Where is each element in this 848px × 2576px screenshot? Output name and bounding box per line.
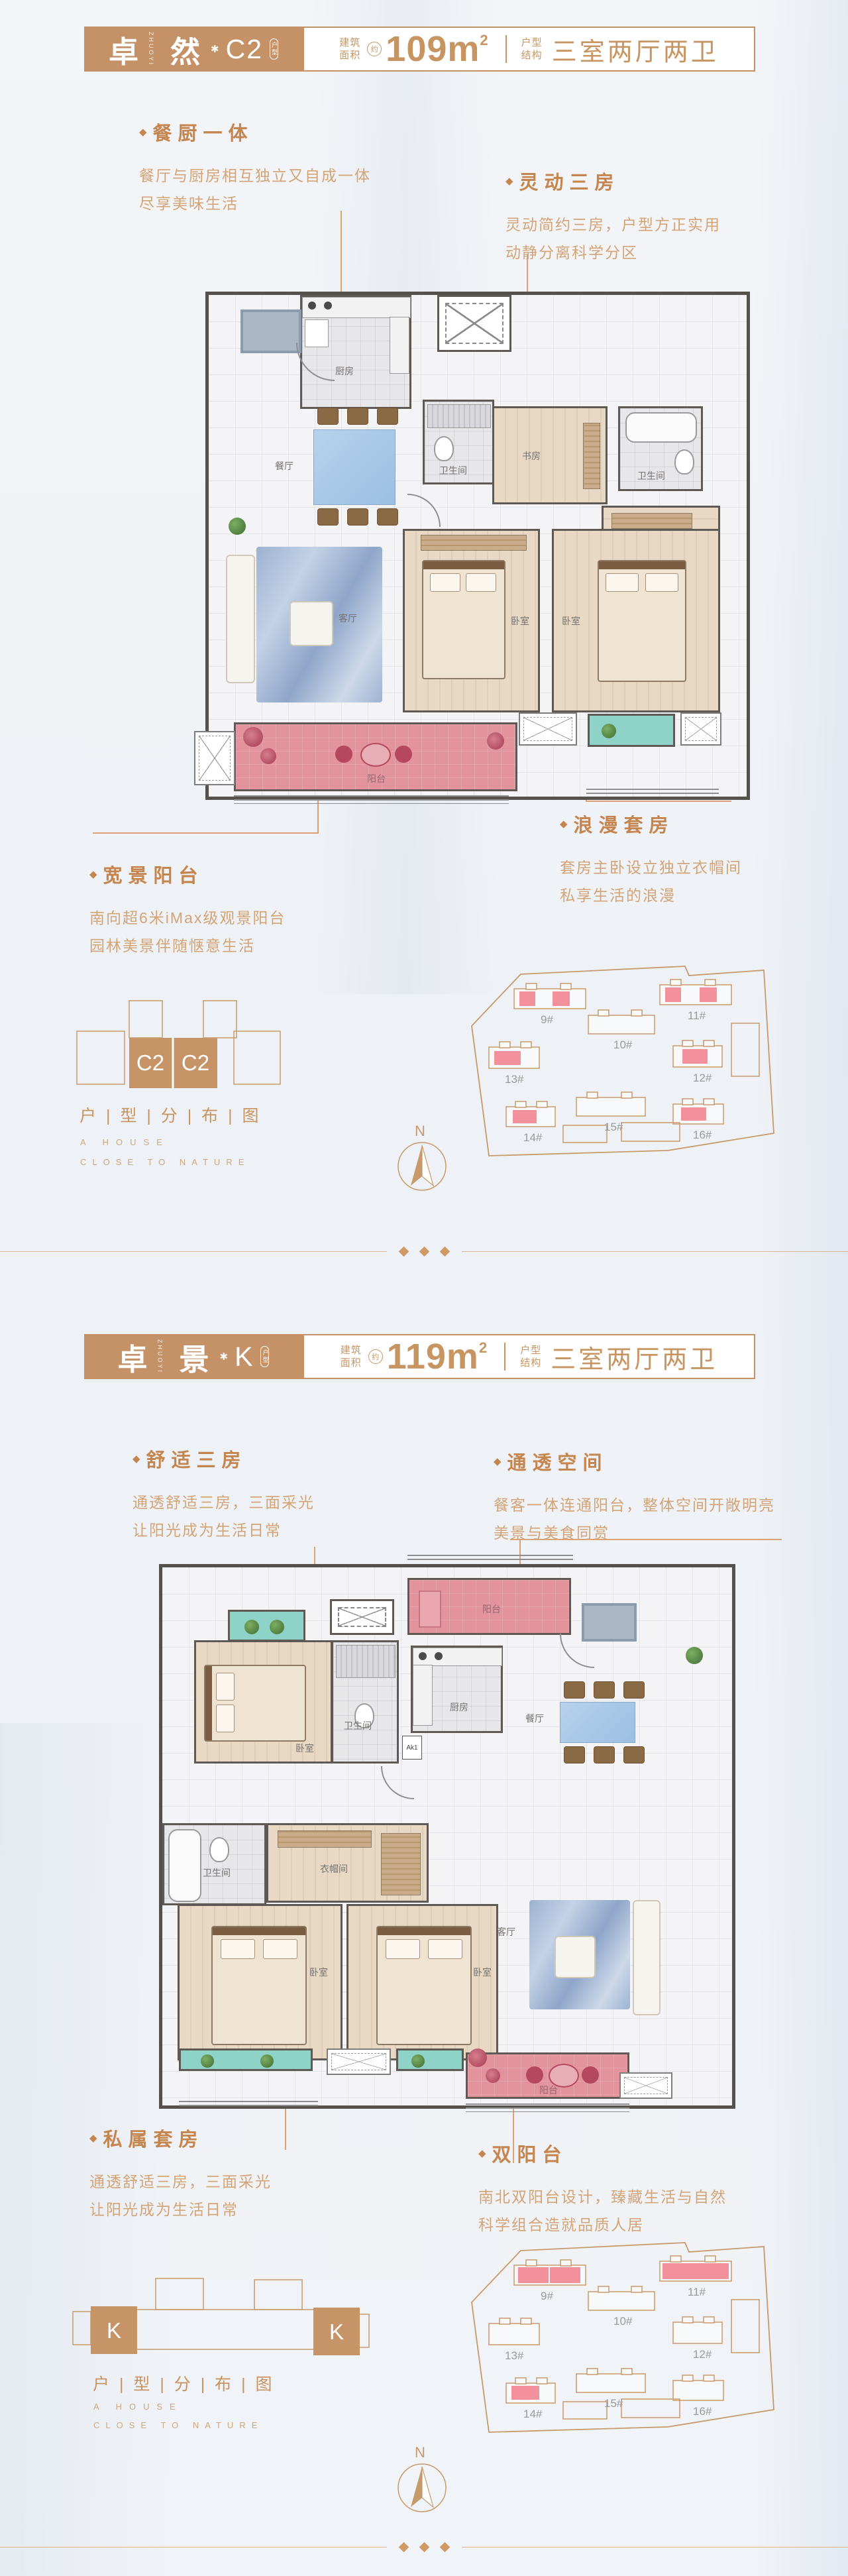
chair-graphic [564,1681,585,1699]
room-label: 厨房 [450,1701,468,1714]
layout-label-line1: 户型 [521,36,543,49]
sofa-graphic [226,555,255,683]
ac-x-icon [523,717,572,741]
coffee-table [290,601,333,646]
feature-title-row: ◆ 灵动三房 [505,167,721,195]
divider-line [462,2547,848,2548]
tower-top [203,1001,237,1038]
brochure-page: 卓 ZHUOYI 然 ✱ C2 户型 建筑 面积 约 109m 2 户型 结构 … [0,0,848,2576]
desk-graphic [583,423,600,489]
pillow [221,1939,255,1959]
pillow [428,1939,462,1959]
room-label: 厨房 [335,364,354,378]
balcony-railing [179,2101,318,2108]
area-value: 119m [387,1336,479,1377]
feature-kitchen-dining: ◆ 餐厨一体 餐厅与厨房相互独立又自成一体 尽享美味生活 [139,118,371,217]
diamond-icon: ◆ [494,1455,502,1467]
compass-needle-light [422,1145,433,1186]
spec-divider [505,35,507,63]
pillow [263,1939,297,1959]
amenity-outline [621,2399,680,2418]
feature-line: 南向超6米iMax级观景阳台 [89,904,286,932]
feature-line: 动静分离科学分区 [505,239,721,266]
balcony-chair [335,746,352,763]
feature-line: 通透舒适三房，三面采光 [89,2168,272,2196]
area-label-line2: 面积 [341,1357,362,1369]
layout-label: 户型 结构 [520,1344,541,1369]
plant-icon [229,518,246,535]
feature-comfort-rooms: ◆ 舒适三房 通透舒适三房，三面采光 让阳光成为生活日常 [132,1445,315,1544]
unit-specs-box: 建筑 面积 约 119m 2 户型 结构 三室两厅两卫 [303,1334,755,1379]
room-bedroom-2: 卧室 [552,529,720,712]
diamond-icon [419,1247,429,1257]
diamond-icon: ◆ [560,818,568,830]
ac-platform [194,731,235,785]
area-value: 109m [386,28,480,70]
balcony-railing [234,795,509,804]
distribution-caption-en1: A HOUSE [93,2402,183,2412]
unit-block-label: K [107,2318,121,2343]
feature-line: 南北双阳台设计，臻藏生活与自然 [478,2183,727,2211]
unit-distribution-c2: C2 C2 [74,981,299,1103]
feature-open-space: ◆ 通透空间 餐客一体连通阳台，整体空间开敞明亮 美景与美食同赏 [494,1447,775,1547]
building-12 [673,2317,722,2343]
building-label: 14# [523,2408,543,2420]
building-label: 13# [505,2349,524,2362]
bed-graphic [204,1665,306,1742]
feature-private-suite: ◆ 私属套房 通透舒适三房，三面采光 让阳光成为生活日常 [89,2124,272,2223]
coffee-table [555,1936,596,1978]
building-label: 11# [688,1009,706,1022]
shower-mat [427,404,491,428]
diamond-icon [439,2542,450,2553]
chair-graphic [347,508,368,526]
pillow [386,1939,420,1959]
wardrobe-shelf [278,1830,372,1848]
diamond-icon: ◆ [89,868,97,880]
unit-name-char2: 然 [170,28,200,71]
area-label-line1: 建筑 [341,1344,362,1357]
wardrobe-shelf [381,1833,421,1895]
flower-icon [243,727,263,747]
layout-label-line2: 结构 [521,49,543,62]
compass: N [391,1121,454,1196]
diamond-icon [398,2542,409,2553]
unit-distribution-k: K K [61,2272,372,2378]
feature-title-row: ◆ 餐厨一体 [139,118,371,146]
room-bedroom-1: 卧室 [403,529,540,712]
feature-line: 餐厅与厨房相互独立又自成一体 [139,162,371,190]
balcony-chair [395,746,412,763]
unit-type-badge: 户型 [270,38,278,60]
feature-double-balcony: ◆ 双阳台 南北双阳台设计，臻藏生活与自然 科学组合造就品质人居 [478,2139,727,2239]
room-label: 卫生间 [637,469,665,482]
feature-title-row: ◆ 双阳台 [478,2139,727,2167]
section-divider [0,2544,848,2551]
feature-balcony: ◆ 宽景阳台 南向超6米iMax级观景阳台 园林美景伴随惬意生活 [89,860,286,960]
compass: N [391,2443,454,2517]
layout-value: 三室两厅两卫 [552,31,719,68]
area-label-line1: 建筑 [339,36,360,49]
dining-table [313,429,396,505]
toilet-graphic [674,449,694,475]
siteplan-k: 9# 10# 11# 12# 13# 14# 15# 16# [462,2239,784,2437]
room-label: 卫生间 [203,1866,231,1879]
building-wing [73,2312,91,2345]
door-tag: Ak1 [402,1736,422,1760]
callout-line [93,832,319,834]
sofa-graphic [633,1900,661,2015]
toilet-graphic [209,1837,229,1862]
flower-icon [487,732,504,750]
floorplan-c2: 厨房 卫生间 书房 卫生间 衣帽间 [205,292,750,800]
dining-chairs [564,1681,645,1699]
plant-icon [201,2054,214,2068]
ac-platform [519,712,577,746]
elevator-shaft [330,1599,394,1635]
building-13 [489,2318,539,2345]
balcony-green [228,1610,305,1642]
layout-label-line1: 户型 [520,1344,541,1357]
room-cloak: 衣帽间 [266,1823,429,1903]
room-label: 餐厅 [525,1712,544,1725]
building-label: 12# [693,1072,712,1084]
star-icon: ✱ [211,43,219,55]
building-label: 12# [693,2348,712,2361]
ac-x-icon [685,717,717,741]
wardrobe-shelf [421,535,527,551]
chair-graphic [377,408,398,425]
feature-line: 让阳光成为生活日常 [132,1516,315,1544]
ac-x-icon [199,736,231,781]
area-sup: 2 [479,1339,487,1357]
dining-chairs [317,508,398,526]
headboard [378,1927,470,1935]
kitchen-counter [413,1648,502,1666]
stove-burner-icon [308,302,316,309]
kitchen-counter [390,317,409,374]
shaft-x-icon [445,303,503,344]
feature-title-row: ◆ 宽景阳台 [89,860,286,888]
wardrobe-shelf [611,513,692,529]
headboard [205,1666,212,1740]
unit-name-box: 卓 ZHUOYI 然 ✱ C2 户型 [84,27,303,72]
unit-code: K [235,1341,254,1372]
distribution-caption: 户 | 型 | 分 | 布 | 图 [93,2371,275,2395]
star-icon: ✱ [220,1351,229,1363]
unit-name-char2: 景 [180,1335,209,1378]
chair-graphic [594,1746,615,1764]
room-label: 书房 [522,449,541,463]
room-label: 卧室 [295,1742,314,1755]
tower-top [156,2278,203,2310]
diamond-icon [439,1247,450,1257]
plant-icon [270,1620,284,1634]
door-arc [560,1634,594,1668]
balcony-green [179,2048,313,2071]
room-label: 客厅 [497,1925,515,1938]
compass-needle-light [422,2467,433,2507]
headboard [599,561,685,569]
building-15 [576,1092,645,1116]
chair-graphic [623,1746,645,1764]
unit-block-label: C2 [136,1050,164,1075]
unit-name-pinyin: ZHUOYI [148,32,154,66]
building-wing [77,1031,125,1084]
headboard [423,561,504,569]
chair-graphic [564,1746,585,1764]
balcony-railing [407,1555,573,1563]
callout-line [586,801,731,802]
bed-graphic [211,1926,307,2045]
area-label: 建筑 面积 [341,1344,362,1369]
building-middle [136,2310,315,2349]
bed-graphic [376,1926,472,2045]
room-label: 阳台 [367,772,386,785]
tower-top [254,2280,302,2310]
unit-specs-box: 建筑 面积 约 109m 2 户型 结构 三室两厅两卫 [303,27,755,72]
building-wing [234,1031,280,1084]
feature-title: 舒适三房 [146,1445,247,1473]
headboard [213,1927,305,1935]
plant-icon [260,2054,274,2068]
amenity-outline [563,2402,607,2419]
balcony-chair [526,2066,543,2084]
flower-icon [468,2048,487,2067]
feature-suite: ◆ 浪漫套房 套房主卧设立独立衣帽间 私享生活的浪漫 [560,810,742,909]
pillow [466,573,496,592]
compass-n-label: N [415,1123,425,1139]
tower-outline [731,2300,759,2353]
bathtub-graphic [168,1829,201,1902]
chair-graphic [347,408,368,425]
distribution-caption-en2: CLOSE TO NATURE [80,1157,250,1167]
diamond-icon [419,2542,429,2553]
feature-line: 美景与美食同赏 [494,1519,775,1547]
tower-top [129,1001,162,1038]
feature-line: 灵动简约三房，户型方正实用 [505,211,721,239]
amenity-outline [563,1125,607,1143]
section-divider [0,1248,848,1255]
feature-title-row: ◆ 浪漫套房 [560,810,742,838]
unit-name-char1: 卓 [109,28,138,71]
chair-graphic [377,508,398,526]
feature-title: 私属套房 [103,2124,204,2152]
building-label: 15# [604,1121,623,1133]
building-label: 13# [505,1073,524,1086]
divider-line [0,2547,387,2548]
balcony-green [396,2048,464,2071]
layout-label-line2: 结构 [520,1357,541,1369]
unit-header-c2: 卓 ZHUOYI 然 ✱ C2 户型 建筑 面积 约 109m 2 户型 结构 … [84,27,755,72]
room-bedroom-2: 卧室 [178,1904,343,2060]
ac-platform [680,712,721,746]
dining-chairs [564,1746,645,1764]
elevator-shaft [437,295,511,352]
plant-icon [244,1620,259,1634]
diamond-icon: ◆ [132,1453,140,1465]
kitchen-counter [413,1665,433,1726]
balcony-railing [586,789,719,796]
area-label-line2: 面积 [339,49,360,62]
area-sup: 2 [480,32,488,49]
pillow [606,573,639,592]
building-label: 16# [693,1129,712,1141]
plant-icon [686,1647,703,1664]
room-label: 阳台 [482,1602,501,1616]
balcony-table [360,743,391,767]
chair-graphic [317,508,339,526]
balcony-north: 阳台 [407,1578,571,1635]
feature-line: 私享生活的浪漫 [560,881,742,909]
flower-icon [260,748,276,764]
building-label: 9# [541,1013,553,1026]
feature-title-row: ◆ 私属套房 [89,2124,272,2152]
building-label: 14# [523,1131,543,1144]
unit-name-char1: 卓 [118,1335,148,1378]
approx-badge: 约 [367,42,382,56]
unit-name-pinyin: ZHUOYI [157,1339,164,1374]
building-label: 11# [688,2286,706,2298]
stove-burner-icon [324,302,332,309]
distribution-caption-en2: CLOSE TO NATURE [93,2420,263,2430]
distribution-caption: 户 | 型 | 分 | 布 | 图 [79,1103,262,1127]
room-bedroom-1: 卧室 [194,1640,333,1764]
chair-graphic [317,408,339,425]
pillow [645,573,678,592]
area-label: 建筑 面积 [339,36,360,62]
compass-needle-dark [411,2467,422,2507]
shaft-x-icon [338,1607,386,1627]
feature-line: 让阳光成为生活日常 [89,2196,272,2223]
unit-code: C2 [226,34,263,65]
room-bath-1: 卫生间 [331,1640,399,1764]
layout-label: 户型 结构 [521,36,543,62]
pillow [216,1673,235,1701]
room-bath-2: 卫生间 [162,1823,266,1905]
chair-graphic [623,1681,645,1699]
ac-x-icon [624,2077,668,2094]
feature-line: 尽享美味生活 [139,190,371,217]
feature-line: 科学组合造就品质人居 [478,2211,727,2239]
feature-three-rooms: ◆ 灵动三房 灵动简约三房，户型方正实用 动静分离科学分区 [505,167,721,266]
stove-burner-icon [435,1652,443,1660]
diamond-icon: ◆ [89,2132,97,2144]
room-bedroom-3: 卧室 [346,1904,498,2060]
unit-name-box: 卓 ZHUOYI 景 ✱ K 户型 [84,1334,303,1379]
ac-platform [619,2072,672,2099]
ac-platform [327,2048,391,2075]
bed-graphic [422,560,505,679]
room-label: 卫生间 [439,464,467,477]
room-label: 餐厅 [275,459,293,473]
kitchen-counter [302,297,411,318]
room-bath-1: 卫生间 [423,400,494,484]
feature-line: 餐客一体连通阳台，整体空间开敞明亮 [494,1491,775,1519]
stove-burner-icon [419,1652,427,1660]
compass-n-label: N [415,2444,425,2461]
floorplan-k: 阳台 卧室 卫生间 [159,1564,735,2109]
room-study: 书房 [492,406,608,504]
spec-divider [504,1343,505,1371]
feature-line: 园林美景伴随惬意生活 [89,932,286,960]
room-label: 阳台 [539,2084,558,2097]
compass-needle-dark [411,1145,422,1186]
balcony-bench [419,1591,441,1628]
feature-title: 灵动三房 [519,167,620,195]
divider-line [0,1251,387,1252]
balcony-railing [466,2103,629,2112]
diamond-icon: ◆ [505,175,513,187]
distribution-caption-en1: A HOUSE [80,1137,170,1147]
building-15 [576,2369,645,2392]
balcony-south: 阳台 [234,722,517,791]
bg-streak [755,0,848,2576]
feature-title: 双阳台 [492,2139,568,2167]
siteplan-c2: 9# 10# 11# 12# 13# 14# 15# 16# [462,962,784,1161]
shower-mat [336,1645,396,1678]
unit-type-badge: 户型 [260,1346,269,1367]
room-label: 卫生间 [344,1719,372,1732]
building-16 [673,2375,723,2400]
room-label: 卧室 [511,614,529,628]
bathtub-graphic [625,412,697,443]
bed-graphic [598,560,686,682]
diamond-icon: ◆ [478,2147,486,2159]
building-10 [588,2286,655,2310]
approx-badge: 约 [368,1349,383,1364]
room-label: 客厅 [339,612,357,625]
building-10 [588,1010,655,1034]
ac-x-icon [331,2053,386,2070]
tower-outline [731,1023,759,1076]
feature-title: 通透空间 [507,1447,608,1475]
feature-title: 餐厨一体 [153,118,254,146]
building-label: 9# [541,2290,553,2302]
callout-line [510,1539,782,1540]
plant-icon [411,2054,425,2068]
diamond-icon: ◆ [139,126,147,138]
room-kitchen: 厨房 [411,1646,503,1733]
door-arc [407,494,441,527]
amenity-outline [621,1123,680,1141]
chair-graphic [594,1681,615,1699]
divider-line [462,1251,848,1252]
unit-header-k: 卓 ZHUOYI 景 ✱ K 户型 建筑 面积 约 119m 2 户型 结构 三… [84,1334,755,1379]
room-label: 卧室 [562,614,580,628]
toilet-graphic [434,436,454,461]
room-label: 衣帽间 [320,1862,348,1876]
room-label: 卧室 [473,1966,492,1979]
building-label: 15# [604,2397,623,2410]
plant-icon [602,724,616,738]
building-label: 10# [613,1038,633,1051]
feature-line: 通透舒适三房，三面采光 [132,1488,315,1516]
layout-value: 三室两厅两卫 [551,1339,717,1375]
flower-icon [486,2068,500,2083]
entry-rug [240,309,301,353]
pillow [430,573,460,592]
room-bath-2: 卫生间 [618,406,703,491]
building-label: 16# [693,2405,712,2418]
dining-table [560,1702,635,1743]
door-arc [381,1766,414,1799]
balcony-green [588,714,675,747]
pillow [216,1705,235,1732]
building-label: 10# [613,2315,633,2327]
feature-title-row: ◆ 通透空间 [494,1447,775,1475]
dining-chairs [317,408,398,425]
